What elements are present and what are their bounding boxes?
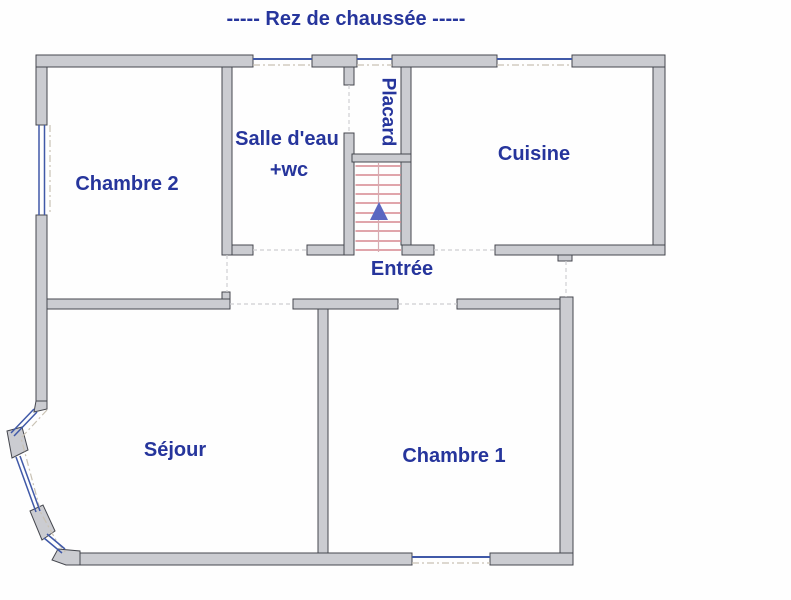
room-label-sejour: Séjour: [144, 440, 206, 460]
room-label-chambre-2: Chambre 2: [75, 174, 178, 194]
room-label-salle-deau: Salle d'eau: [235, 129, 339, 149]
room-label-entree: Entrée: [371, 259, 433, 279]
floor-plan-page: ----- Rez de chaussée -----: [0, 0, 791, 600]
room-label-wc: +wc: [270, 160, 308, 180]
exterior-walls-lower: [47, 292, 573, 565]
up-arrow-icon: [370, 202, 388, 220]
staircase: [356, 163, 402, 252]
bay-window: [7, 401, 80, 565]
room-label-placard: Placard: [379, 78, 398, 147]
room-label-cuisine: Cuisine: [498, 144, 570, 164]
room-label-chambre-1: Chambre 1: [402, 446, 505, 466]
